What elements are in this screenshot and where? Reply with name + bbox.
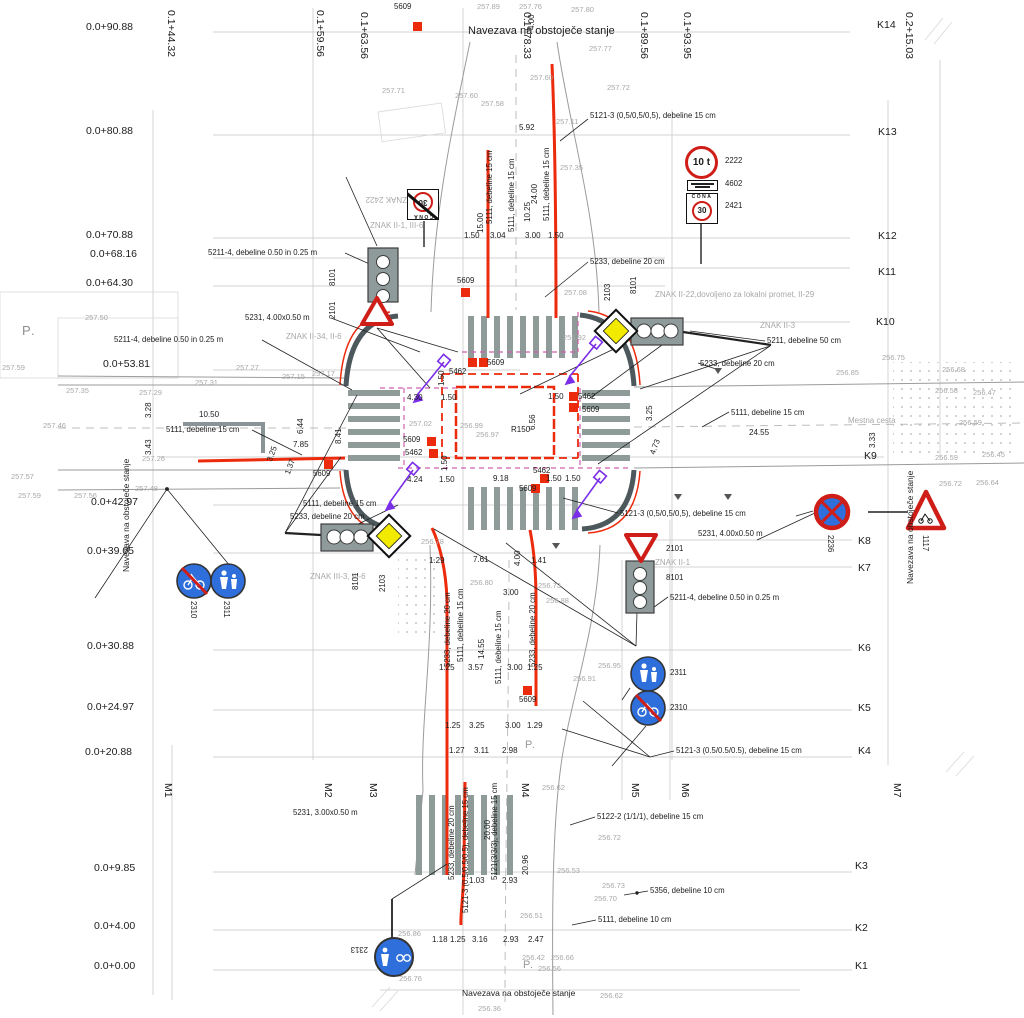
- red-markers: [324, 22, 578, 695]
- traffic-light-south: [626, 561, 654, 613]
- zone-30-end-sign: CONA 30: [407, 189, 439, 220]
- pedestrian-path-sign-east: [631, 657, 665, 691]
- supplemental-plate-sign: [687, 180, 718, 191]
- traffic-light-east: [631, 318, 683, 345]
- shared-path-sign-south: [375, 938, 413, 976]
- zone-word-end: CONA: [408, 212, 438, 219]
- give-way-sign: [626, 535, 656, 561]
- traffic-plan-canvas: 10 t CONA 30 CONA 30 0.0+90.880.0+80.880…: [0, 0, 1024, 1018]
- cyclist-warning-sign: [908, 492, 944, 528]
- blue-signs: [177, 496, 848, 976]
- no-bicycles-sign-west: [177, 564, 211, 598]
- zone-30-sign: CONA 30: [686, 193, 718, 224]
- weight-limit-value: 10 t: [693, 157, 710, 168]
- zone-speed: 30: [692, 201, 712, 221]
- zone-word: CONA: [687, 194, 717, 201]
- level-triangles: [552, 368, 732, 549]
- no-bicycles-sign-east: [631, 691, 665, 725]
- weight-limit-sign: 10 t: [685, 146, 718, 179]
- traffic-light-south-west: [321, 524, 373, 551]
- plan-drawing: [0, 0, 1024, 1018]
- lamp-pole-nw: [414, 354, 450, 402]
- no-stopping-sign: [816, 496, 848, 528]
- traffic-light-north-west: [368, 248, 398, 303]
- pedestrian-path-sign-west: [211, 564, 245, 598]
- priority-sign-east: [595, 310, 637, 352]
- zone-speed-end: 30: [413, 192, 433, 212]
- crosswalk-zebra: [348, 316, 630, 875]
- lamp-pole-se: [573, 470, 606, 518]
- lamp-pole-sw: [386, 462, 419, 510]
